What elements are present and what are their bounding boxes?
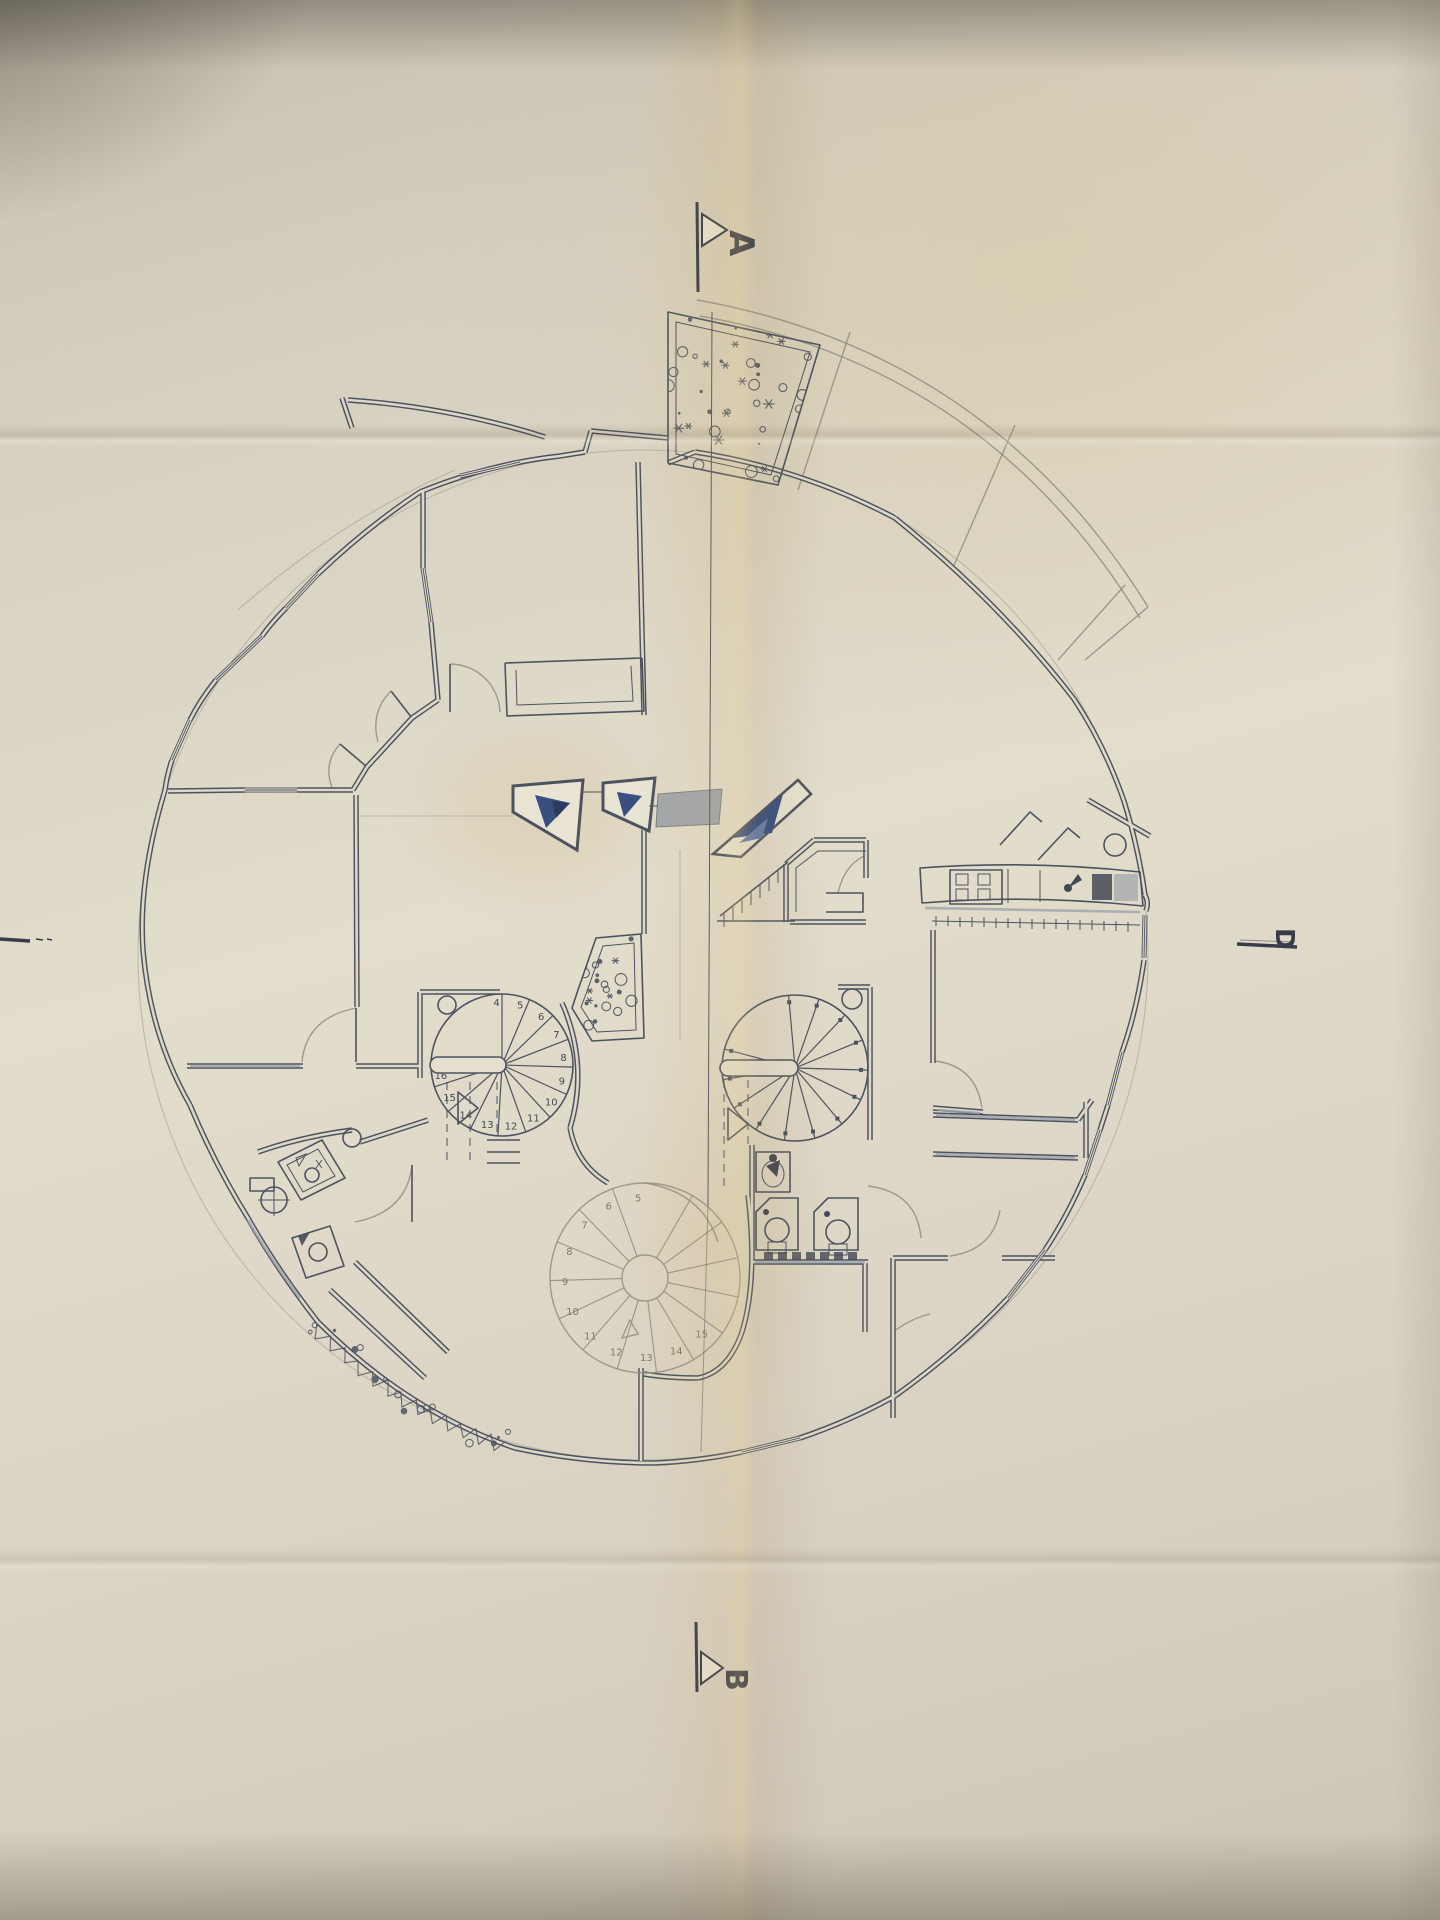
toilet-right [826,1220,850,1244]
svg-text:10: 10 [566,1307,579,1318]
built-in-desk [505,658,644,716]
section-tick-left [0,939,30,941]
svg-text:11: 11 [527,1114,540,1125]
door-swings [302,664,1000,1332]
svg-text:6: 6 [538,1012,544,1023]
section-marker-b: B [718,1668,753,1691]
kitchen-skylight-chevrons [1000,812,1080,860]
svg-text:7: 7 [581,1221,587,1232]
svg-text:5: 5 [635,1193,641,1204]
svg-text:15: 15 [443,1093,456,1104]
washbasin [250,1178,290,1216]
stair-landing-left [430,1057,506,1073]
svg-text:4: 4 [493,998,499,1009]
svg-text:12: 12 [610,1348,623,1359]
svg-text:12: 12 [505,1121,518,1132]
wc-sink [756,1152,790,1192]
svg-text:8: 8 [566,1247,572,1258]
svg-text:15: 15 [695,1330,708,1341]
spiral-stair-lower: 56789101112131415 [550,1183,740,1373]
svg-text:11: 11 [584,1332,597,1343]
toilet [292,1226,344,1278]
spiral-stair-right [720,989,868,1188]
ink-walls [142,398,1150,1463]
shower-tray [278,1140,345,1200]
svg-text:10: 10 [545,1098,558,1109]
section-marker-a: A [721,230,761,257]
toilet-left [765,1218,789,1242]
planter-vegetation [577,932,638,1036]
svg-text:5: 5 [517,1001,523,1012]
section-line-ab: A B [696,202,761,1692]
floor-plan-drawing: 45678910111213141516 56789101112131415 [0,0,1440,1920]
wall-poche [190,908,1140,1298]
svg-text:13: 13 [640,1353,653,1364]
skylight-panel-gray [656,789,722,827]
stair-landing-right [720,1060,798,1076]
svg-text:9: 9 [559,1077,565,1088]
svg-text:14: 14 [670,1347,683,1358]
svg-text:7: 7 [553,1030,559,1041]
kitchen-counter [920,812,1143,932]
section-line-d: D [0,928,1299,950]
svg-text:6: 6 [606,1202,612,1213]
corner-sink [1104,834,1126,856]
photographed-floor-plan: 45678910111213141516 56789101112131415 [0,0,1440,1920]
clerestory-skylights [360,778,811,857]
section-marker-d: D [1269,928,1299,950]
hall-planter [572,932,644,1041]
wc-cubicles [756,1152,858,1260]
spiral-stair-left: 45678910111213141516 [430,994,573,1166]
svg-text:9: 9 [562,1277,568,1288]
kitchen-sink [1064,874,1138,901]
svg-text:13: 13 [481,1120,494,1131]
svg-text:8: 8 [560,1053,566,1064]
